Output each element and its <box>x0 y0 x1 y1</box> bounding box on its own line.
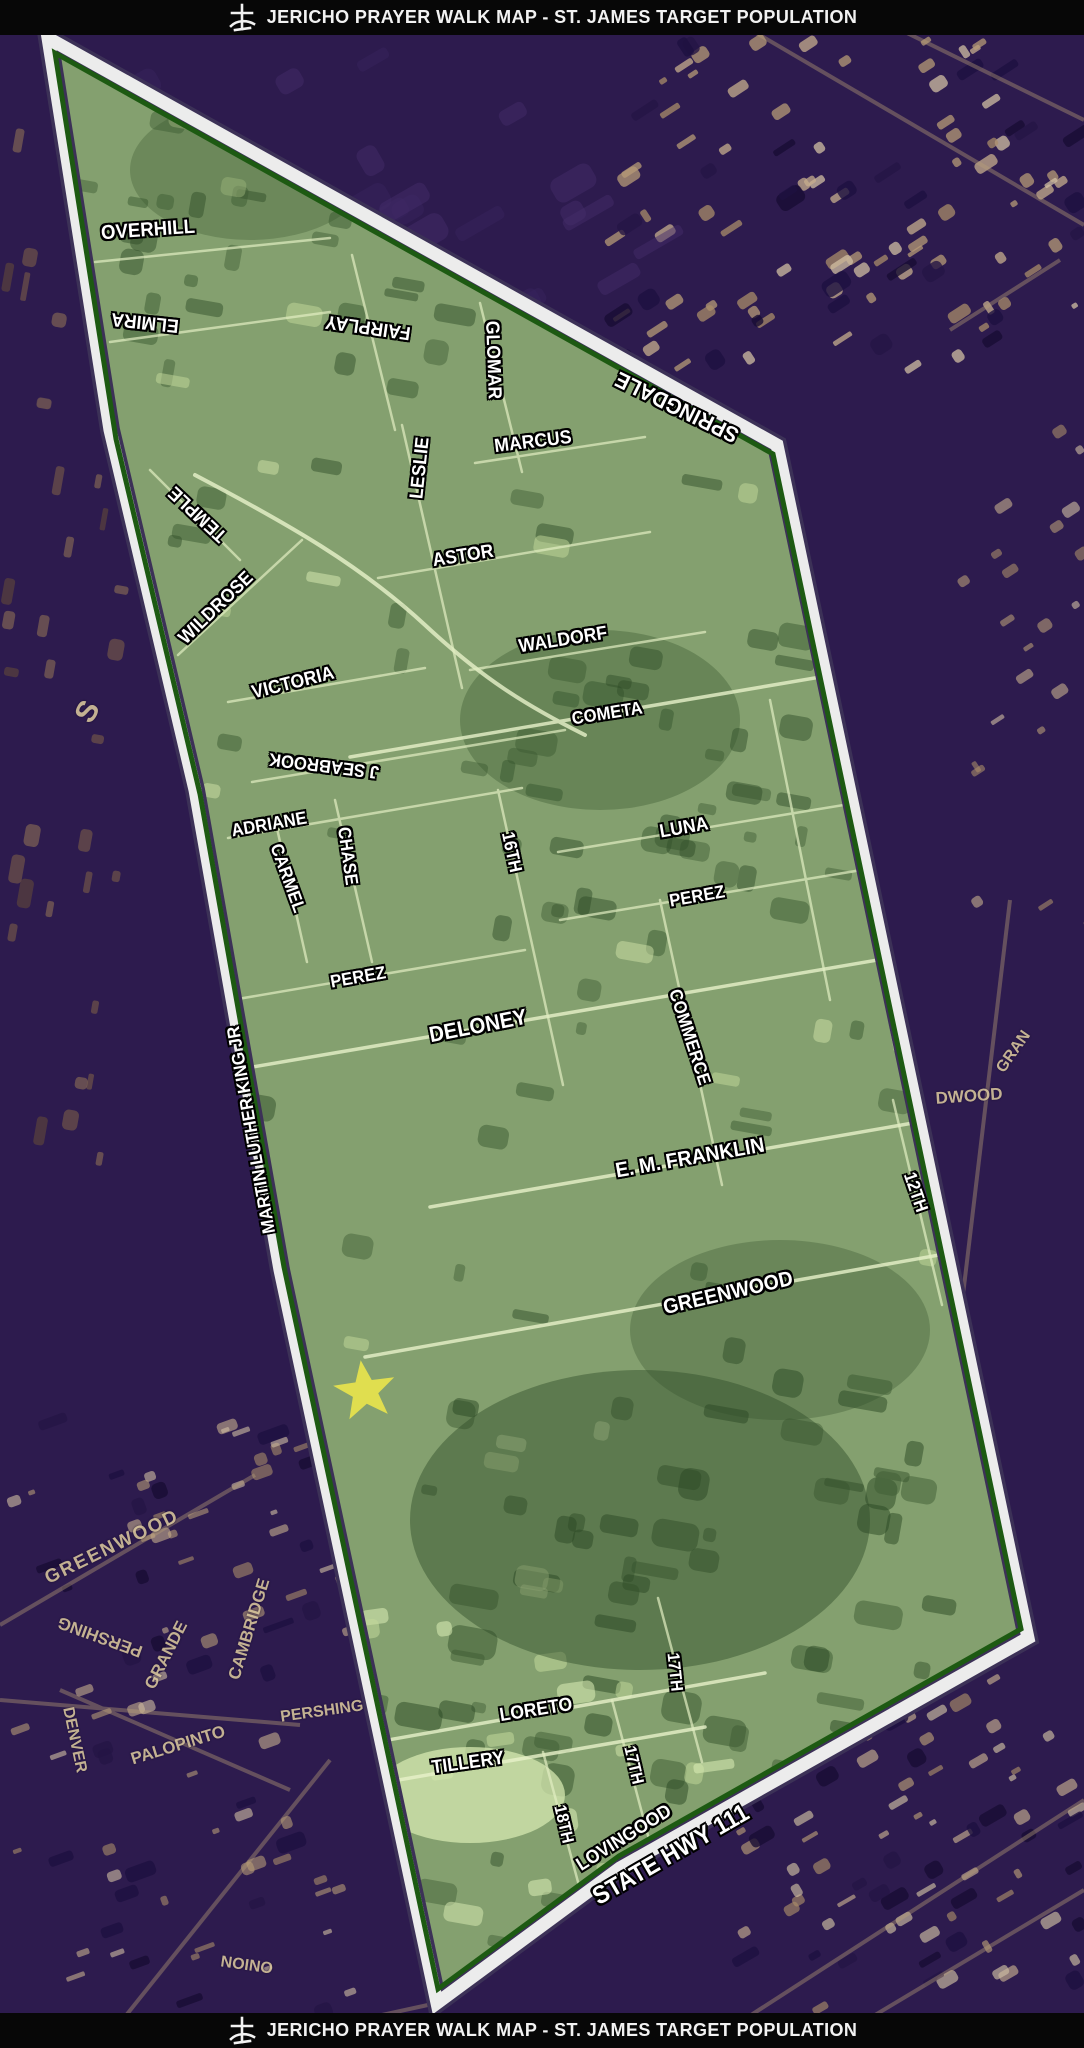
top-title-bar: JERICHO PRAYER WALK MAP - ST. JAMES TARG… <box>0 0 1084 35</box>
bottom-title-bar: JERICHO PRAYER WALK MAP - ST. JAMES TARG… <box>0 2013 1084 2048</box>
cross-logo-icon <box>227 3 257 33</box>
map-title: JERICHO PRAYER WALK MAP - ST. JAMES TARG… <box>267 7 858 28</box>
cross-logo-icon <box>227 2016 257 2046</box>
prayer-walk-map-page: OVERHILLELMIRAFAIRPLAYTEMPLEGLOMARLESLIE… <box>0 0 1084 2048</box>
aerial-map-graphic <box>0 0 1084 2048</box>
aerial-map: OVERHILLELMIRAFAIRPLAYTEMPLEGLOMARLESLIE… <box>0 0 1084 2048</box>
map-title: JERICHO PRAYER WALK MAP - ST. JAMES TARG… <box>267 2020 858 2041</box>
